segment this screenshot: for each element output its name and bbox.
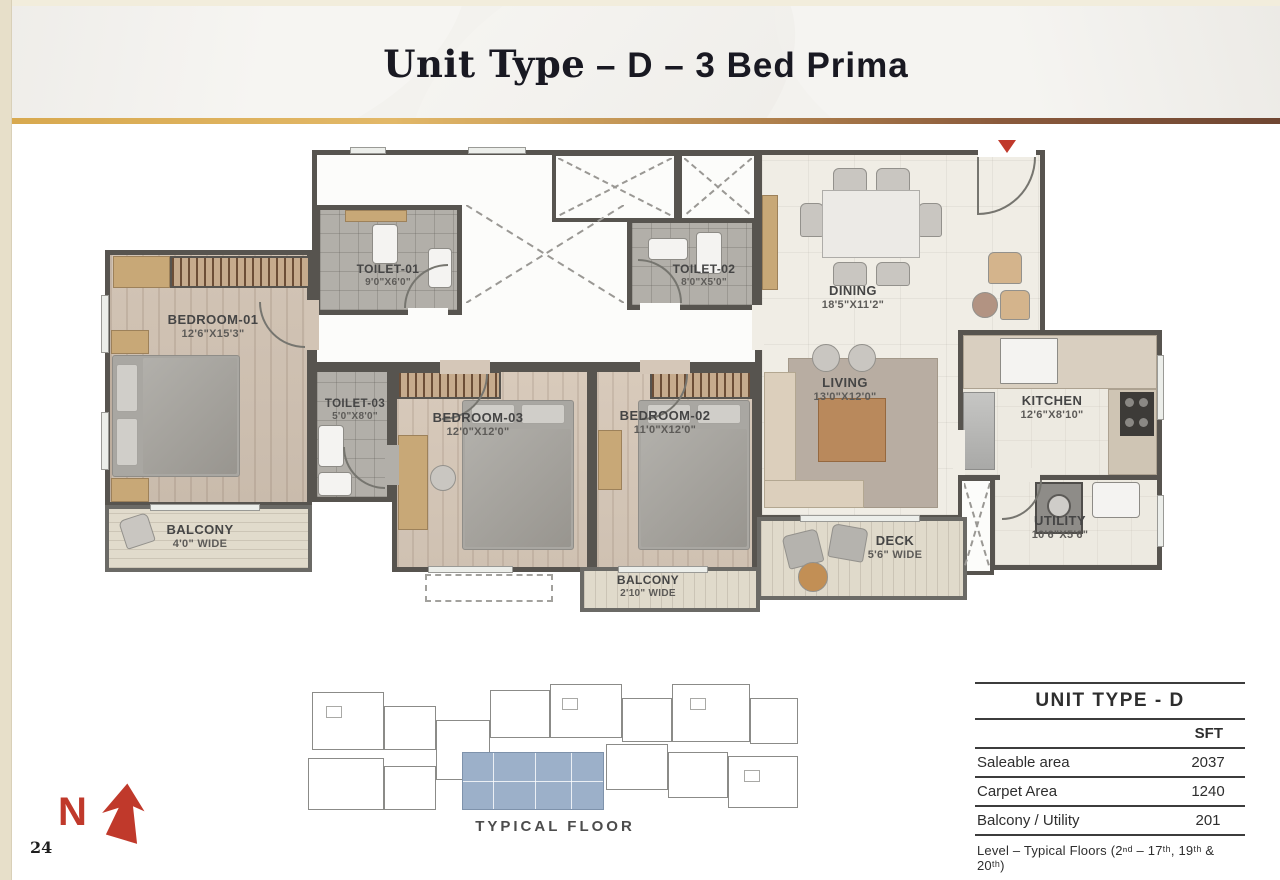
utility-sink xyxy=(1092,482,1140,518)
dining-chair xyxy=(876,168,910,192)
label-kitchen: KITCHEN12'6"X8'10" xyxy=(1020,393,1083,421)
keyplan-block xyxy=(672,684,750,742)
spec-table-unit-header: SFT xyxy=(975,720,1245,749)
spec-row-label: Saleable area xyxy=(977,754,1070,771)
label-toilet2: TOILET-028'0"X5'0" xyxy=(673,262,736,288)
dining-chair xyxy=(918,203,942,237)
bedroom1-window xyxy=(101,295,109,353)
keyplan-block xyxy=(312,692,384,750)
deck-chair xyxy=(827,523,868,563)
keyplan: TYPICAL FLOOR xyxy=(300,672,810,832)
shaft-cross-mark xyxy=(964,483,990,569)
foyer-passage-opening xyxy=(752,305,764,350)
spec-row-balcony-utility: Balcony / Utility 201 xyxy=(975,807,1245,836)
desk-chair xyxy=(430,465,456,491)
keyplan-block xyxy=(728,756,798,808)
nook-table xyxy=(972,292,998,318)
entry-arrow-icon xyxy=(998,140,1016,153)
lift2-cross-mark xyxy=(684,158,752,216)
bedroom1-door-opening xyxy=(305,300,319,350)
keyplan-highlighted-unit xyxy=(462,752,604,810)
bedroom2-balcony-slider xyxy=(618,566,708,573)
toilet1-door-opening xyxy=(408,308,448,320)
keyplan-detail xyxy=(744,770,760,782)
spec-row-carpet: Carpet Area 1240 xyxy=(975,778,1245,807)
keyplan-block xyxy=(750,698,798,744)
label-deck: DECK5'6" WIDE xyxy=(868,533,923,561)
label-dining: DINING18'5"X11'2" xyxy=(822,283,884,311)
dining-chair xyxy=(800,203,824,237)
nightstand xyxy=(111,330,149,354)
wardrobe-bedroom1 xyxy=(170,256,310,288)
spec-row-value: 201 xyxy=(1187,812,1243,829)
bedroom3-door-opening xyxy=(440,360,490,374)
lobby-vent xyxy=(468,147,526,154)
spec-table-footer: Level – Typical Floors (2ⁿᵈ – 17ᵗʰ, 19ᵗʰ… xyxy=(975,836,1245,878)
toilet2-sink xyxy=(648,238,688,260)
kitchen-window xyxy=(1157,355,1164,420)
nightstand xyxy=(111,478,149,502)
toilet1-vanity xyxy=(345,210,407,222)
fridge-icon xyxy=(963,392,995,470)
hob-icon xyxy=(1120,392,1154,436)
north-label: N xyxy=(58,790,87,835)
kitchen-passage-opening xyxy=(953,430,965,475)
deck-table xyxy=(798,562,828,592)
lobby-vent xyxy=(350,147,386,154)
label-utility: UTILITY10'6"X5'6" xyxy=(1032,513,1089,541)
toilet3-door-opening xyxy=(385,445,399,485)
bedroom2-door-opening xyxy=(640,360,690,374)
dining-table xyxy=(822,190,920,258)
bedroom1-window xyxy=(101,412,109,470)
utility-window xyxy=(1157,495,1164,547)
kitchen-sink xyxy=(1000,338,1058,384)
north-arrow-icon xyxy=(94,782,148,848)
spec-row-label: Carpet Area xyxy=(977,783,1057,800)
keyplan-block xyxy=(490,690,550,738)
nook-chair xyxy=(988,252,1022,284)
projection-dashed-outline xyxy=(425,574,553,602)
entry-door-leaf xyxy=(977,157,979,215)
dining-chair xyxy=(833,168,867,192)
keyplan-detail xyxy=(690,698,706,710)
spec-row-value: 1240 xyxy=(1187,783,1243,800)
lift1-cross-mark xyxy=(558,158,672,216)
north-indicator: N xyxy=(58,782,168,852)
coffee-table xyxy=(818,398,886,462)
label-balcony2: BALCONY2'10" WIDE xyxy=(617,573,679,599)
toilet2-door-opening xyxy=(640,303,680,315)
keyplan-label: TYPICAL FLOOR xyxy=(475,818,635,835)
nook-chair xyxy=(1000,290,1030,320)
toilet1-wc xyxy=(372,224,398,264)
sofa-chaise xyxy=(764,480,864,508)
keyplan-block xyxy=(308,758,384,810)
label-toilet3: TOILET-035'0"X8'0" xyxy=(325,398,385,422)
keyplan-block xyxy=(384,766,436,810)
page-number: 24 xyxy=(30,838,52,857)
pouf xyxy=(812,344,840,372)
keyplan-detail xyxy=(562,698,578,710)
label-bedroom2: BEDROOM-0211'0"X12'0" xyxy=(620,408,711,436)
toilet3-sink xyxy=(318,472,352,496)
label-living: LIVING13'0"X12'0" xyxy=(813,375,876,403)
dresser-bedroom1 xyxy=(113,256,170,288)
toilet3-wc xyxy=(318,425,344,467)
shelf-bedroom2 xyxy=(598,430,622,490)
spec-row-value: 2037 xyxy=(1187,754,1243,771)
pouf xyxy=(848,344,876,372)
unit-spec-table: UNIT TYPE - D SFT Saleable area 2037 Car… xyxy=(975,682,1245,878)
keyplan-block xyxy=(550,684,622,738)
bed-bedroom1 xyxy=(112,355,240,477)
lobby-cross-mark xyxy=(466,205,624,303)
label-balcony1: BALCONY4'0" WIDE xyxy=(166,522,233,550)
keyplan-detail xyxy=(326,706,342,718)
spec-row-label: Balcony / Utility xyxy=(977,812,1080,829)
keyplan-block xyxy=(384,706,436,750)
living-deck-slider xyxy=(800,515,920,522)
spec-table-title: UNIT TYPE - D xyxy=(975,684,1245,720)
kitchen-counter-top xyxy=(963,335,1157,389)
bedroom3-window xyxy=(428,566,513,573)
label-bedroom3: BEDROOM-0312'0"X12'0" xyxy=(433,410,524,438)
keyplan-block xyxy=(668,752,728,798)
desk-bedroom3 xyxy=(398,435,428,530)
keyplan-block xyxy=(606,744,668,790)
bedroom1-balcony-slider xyxy=(150,504,260,511)
label-toilet1: TOILET-019'0"X6'0" xyxy=(357,262,420,288)
label-bedroom1: BEDROOM-0112'6"X15'3" xyxy=(168,312,259,340)
keyplan-block xyxy=(622,698,672,742)
spec-row-saleable: Saleable area 2037 xyxy=(975,749,1245,778)
sideboard-dining xyxy=(762,195,778,290)
